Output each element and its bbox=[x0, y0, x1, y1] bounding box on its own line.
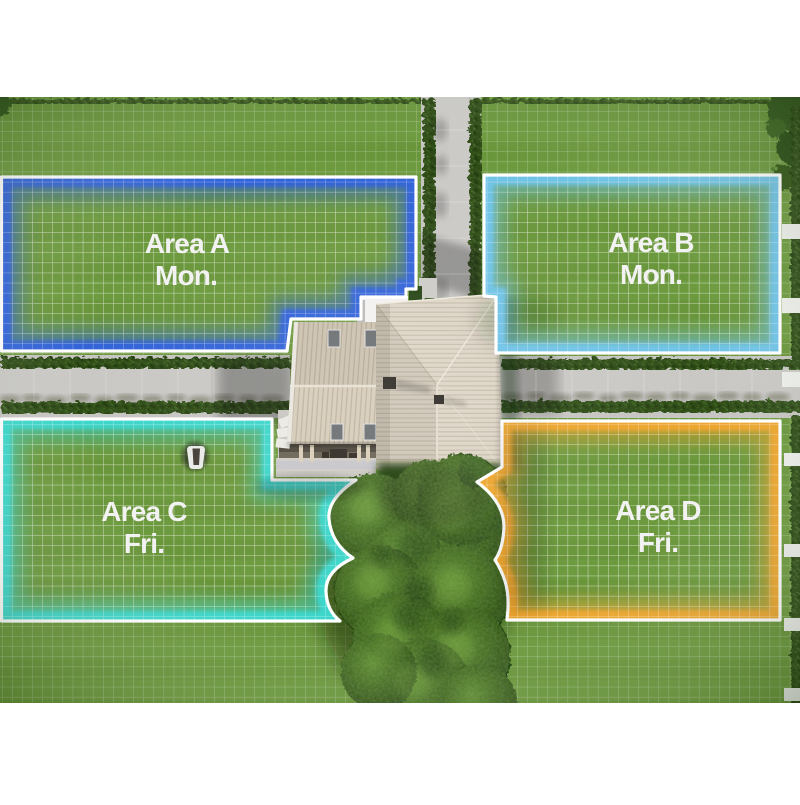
svg-text:Area C: Area C bbox=[101, 496, 187, 527]
svg-text:Area A: Area A bbox=[145, 228, 230, 259]
svg-text:Area B: Area B bbox=[608, 227, 693, 258]
svg-text:Fri.: Fri. bbox=[124, 528, 164, 559]
svg-text:Mon.: Mon. bbox=[155, 260, 217, 291]
svg-text:Mon.: Mon. bbox=[620, 259, 682, 290]
svg-text:Area D: Area D bbox=[615, 495, 701, 526]
svg-text:Fri.: Fri. bbox=[638, 527, 678, 558]
